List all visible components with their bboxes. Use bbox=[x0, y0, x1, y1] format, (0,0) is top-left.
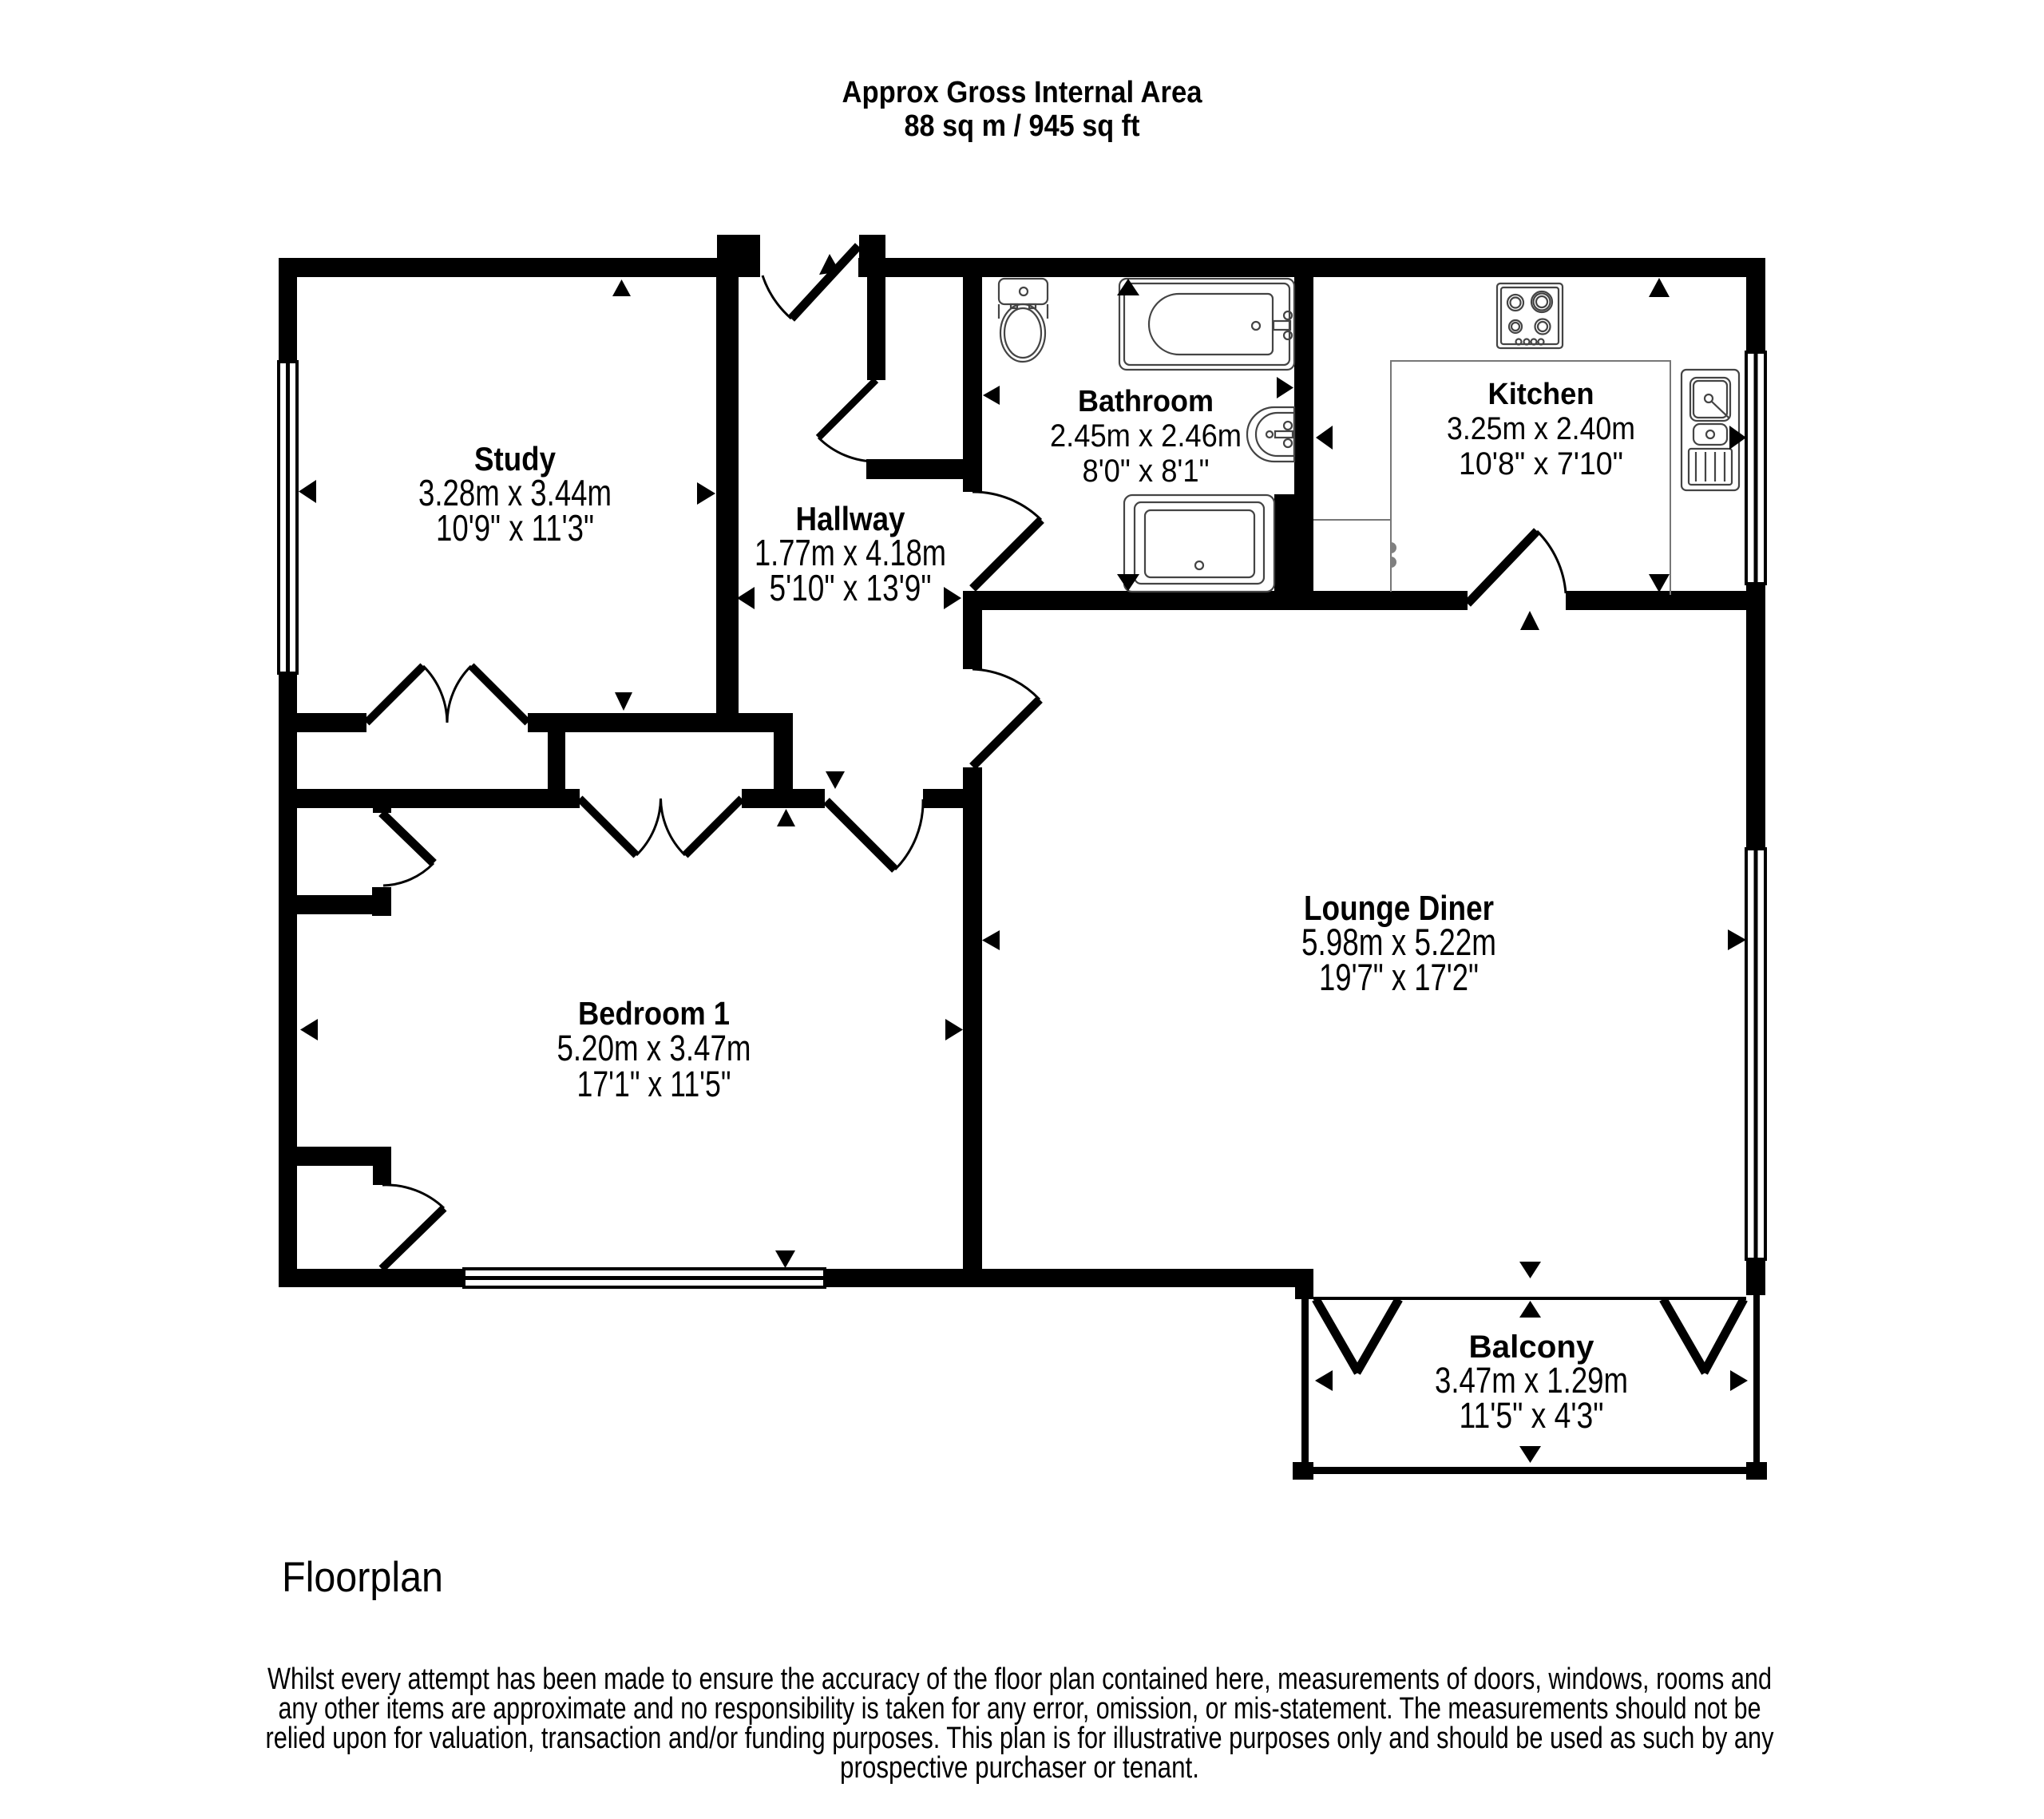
svg-text:Approx Gross Internal Area: Approx Gross Internal Area bbox=[842, 76, 1203, 109]
svg-text:8'0" x 8'1": 8'0" x 8'1" bbox=[1083, 454, 1210, 489]
svg-text:19'7" x 17'2": 19'7" x 17'2" bbox=[1319, 956, 1479, 998]
svg-text:prospective purchaser or tenan: prospective purchaser or tenant. bbox=[840, 1751, 1199, 1785]
svg-text:Floorplan: Floorplan bbox=[282, 1554, 443, 1601]
svg-text:5.20m x 3.47m: 5.20m x 3.47m bbox=[557, 1028, 751, 1068]
svg-text:10'8" x 7'10": 10'8" x 7'10" bbox=[1459, 446, 1623, 481]
svg-text:Whilst every attempt has been: Whilst every attempt has been made to en… bbox=[267, 1662, 1772, 1696]
svg-text:Kitchen: Kitchen bbox=[1488, 378, 1594, 411]
svg-text:2.45m x 2.46m: 2.45m x 2.46m bbox=[1050, 418, 1242, 454]
svg-text:11'5" x 4'3": 11'5" x 4'3" bbox=[1460, 1395, 1604, 1436]
svg-text:relied upon for valuation, tra: relied upon for valuation, transaction a… bbox=[266, 1722, 1774, 1755]
svg-text:10'9" x 11'3": 10'9" x 11'3" bbox=[436, 507, 594, 549]
svg-text:5'10" x 13'9": 5'10" x 13'9" bbox=[770, 567, 932, 608]
svg-text:88 sq m / 945 sq ft: 88 sq m / 945 sq ft bbox=[905, 109, 1140, 143]
svg-text:3.25m x 2.40m: 3.25m x 2.40m bbox=[1447, 411, 1635, 446]
svg-text:Bathroom: Bathroom bbox=[1078, 385, 1214, 418]
svg-text:any other items are approximat: any other items are approximate and no r… bbox=[279, 1692, 1761, 1726]
svg-text:17'1" x 11'5": 17'1" x 11'5" bbox=[577, 1064, 731, 1104]
svg-text:Bedroom 1: Bedroom 1 bbox=[578, 995, 730, 1032]
